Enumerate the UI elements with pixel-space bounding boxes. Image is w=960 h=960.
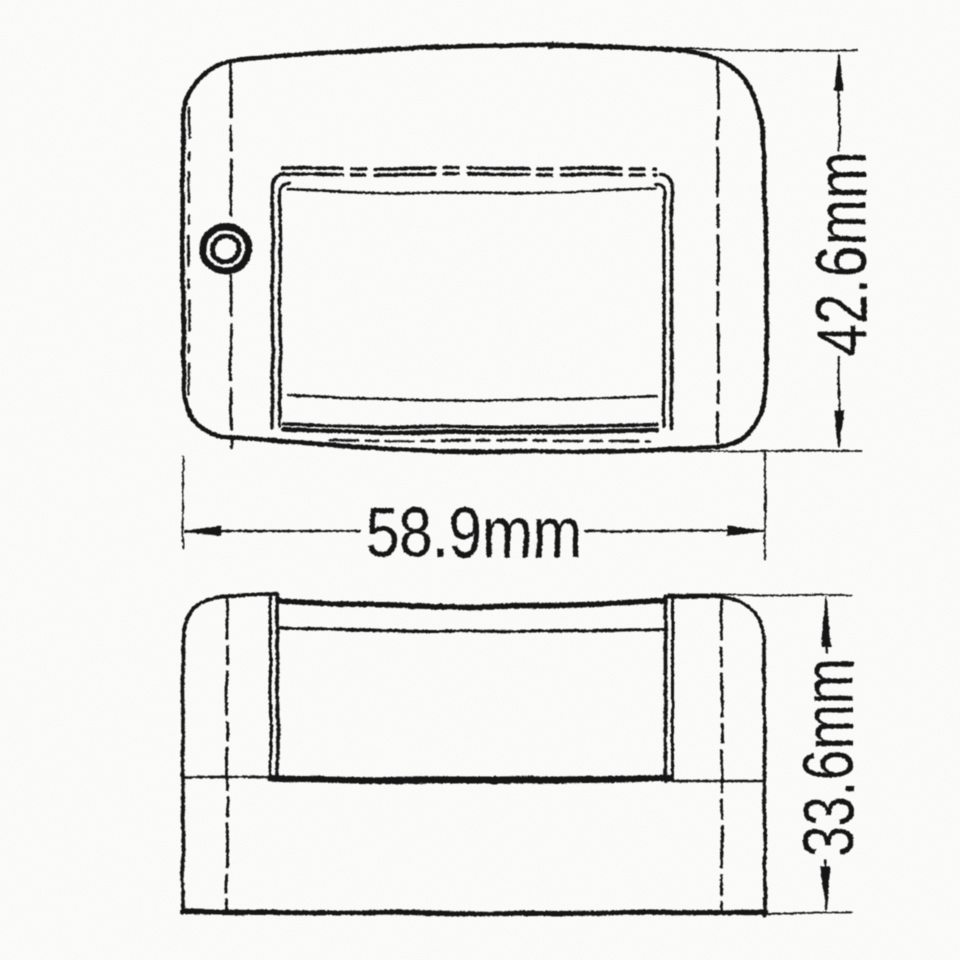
svg-text:33.6mm: 33.6mm <box>790 658 869 857</box>
svg-text:58.9mm: 58.9mm <box>366 494 582 573</box>
svg-text:42.6mm: 42.6mm <box>803 151 882 356</box>
